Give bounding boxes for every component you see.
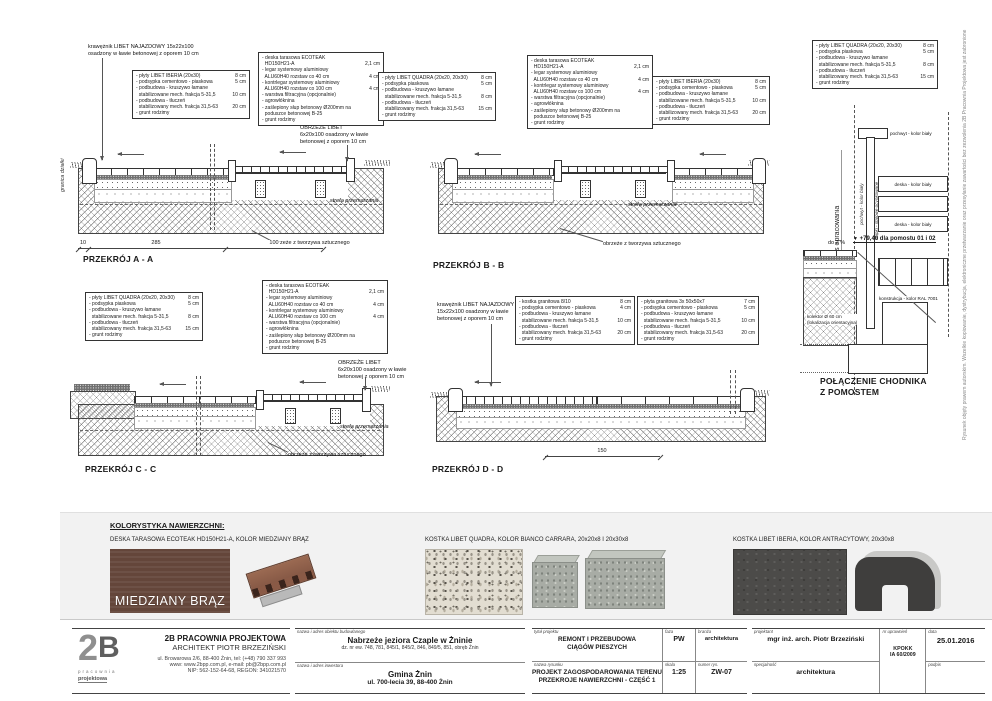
deck-joists-section [878,258,948,286]
label-obrzeze-tw-c: obrzeże z tworzywa sztucznego [288,452,366,459]
grass-symbol [370,386,390,392]
specjalnosc-row: specjalność architektura [752,662,879,693]
spec-box-quadra-b: - płyty LIBET QUADRA (20x20, 20x30)8 cm-… [378,72,496,121]
spec-lines: - deska tarasowa ECOTEAK HD150H21-A2,1 c… [266,283,384,351]
spec-lines: - płyta granitowa 3x 50x50x77 cm- podsyp… [641,299,755,342]
ground-hatch [803,277,857,346]
spec-box-iberia-a: - płyty LIBET IBERIA (20x30)8 cm- podsyp… [132,70,250,119]
titleblock-project-cell: tytuł projektu REMONT I PRZEBUDOWA CIĄGÓ… [532,628,747,694]
elevation-value: +79,40 dla pomostu 01 i 02 [860,236,936,242]
numer-value: ZW-07 [696,669,747,676]
label-pochwyt: pochwyt - kolor biały [890,131,932,137]
concrete-post [635,180,646,198]
concrete-post [580,180,591,198]
investor-row: nazwa i adres inwestora Gmina Żnin ul. 7… [295,663,525,693]
spec-lines: - płyty LIBET QUADRA (20x20, 20x30)8 cm-… [89,295,199,338]
spec-line: - grunt rodzimy [136,110,246,116]
elevation-marker-icon: ▼ [853,236,858,242]
edge-band [667,160,675,182]
deck-board: deska - kolor biały [878,176,948,192]
concrete-post [285,408,296,424]
spec-line: - grunt rodzimy [262,117,380,123]
data-label: data [926,629,985,636]
logo-sub2: projektowa [78,676,107,683]
spec-line: - grunt rodzimy [89,332,199,338]
skala-label: skala [663,662,695,669]
company-logo: 2 B pracownia projektowa [76,635,134,687]
slope-arrow-icon [700,154,726,155]
boundary-line [948,112,949,337]
projektant-label: projektant [752,629,879,636]
edge-band [256,390,264,410]
guide-line [800,372,848,373]
spec-line: - grunt rodzimy [816,80,934,86]
podpis-label: podpis [926,662,985,669]
company-name: 2B PRACOWNIA PROJEKTOWA [134,634,286,643]
joist-line [262,401,362,404]
label-kraweznik-a: krawężnik LIBET NAJAZDOWY 15x22x100 osad… [88,44,248,58]
block-front-face [855,557,935,611]
expansion-joint [735,370,736,414]
joist-line [558,173,666,176]
spec-box-quadra-c: - płyty LIBET QUADRA (20x20, 20x30)8 cm-… [85,292,203,341]
spec-line: - grunt rodzimy [531,120,649,126]
skala-col: skala 1:25 [662,662,695,693]
dim-value: 285 [150,240,161,246]
branza-value: architektura [696,636,747,642]
numer-col: numer rys. ZW-07 [695,662,747,693]
slope-arrow-icon [160,384,186,385]
spec-line: - grunt rodzimy [382,112,492,118]
cross-section-c-drawing [70,384,390,460]
grass-symbol [364,160,390,166]
data-row: data 25.01.2016 [926,629,985,662]
dimension-line-d: 150 [545,456,660,457]
company-architect: ARCHITEKT PIOTR BRZEZIŃSKI [134,643,286,652]
spec-line: - grunt rodzimy [641,336,755,342]
deck-boards [262,394,364,401]
cross-section-d-drawing [430,386,770,444]
edge-band [228,160,236,182]
slope-arrow-icon [475,154,501,155]
dim-tick [86,246,92,252]
designer-col: projektant mgr inż. arch. Piotr Brzezińs… [752,629,879,693]
specjalnosc-label: specjalność [752,662,879,669]
dimension-line-a: 10 285 100 [78,248,323,249]
projektant-value: mgr inż. arch. Piotr Brzeziński [752,636,879,643]
joist-line [232,173,346,176]
numer-label: numer rys. [696,662,747,669]
spec-lines: - płyty LIBET QUADRA (20x20, 20x30)8 cm-… [816,43,934,86]
branza-label: branża [696,629,747,636]
spec-box-plyta-d: - płyta granitowa 3x 50x50x77 cm- podsyp… [637,296,759,345]
concrete-post [315,180,326,198]
subbase-layer [134,416,256,429]
investor-label: nazwa i adres inwestora [295,663,525,670]
logo-char-b: B [98,631,120,665]
label-obrzeze-tw-b: obrzeże z tworzywa sztucznego [603,241,681,248]
label-kolektor: kolektor Ø 60 cm (lokalizacja orientacyj… [806,314,858,325]
project-row: tytuł projektu REMONT I PRZEBUDOWA CIĄGÓ… [532,629,747,662]
color-item-label-ecoteak: DESKA TARASOWA ECOTEAK HD150H21-A, KOLOR… [110,537,309,543]
concrete-post [255,180,266,198]
quadra-block-small [532,555,578,607]
dim-tick [321,246,327,252]
spec-lines: - deska tarasowa ECOTEAK HD150H21-A2,1 c… [531,58,649,126]
block-front-face [585,558,665,609]
company-nip: NIP: 562-152-64-68, REGON: 341021570 [134,668,286,674]
subbase-layer [672,189,754,203]
spec-box-iberia-b: - płyty LIBET IBERIA (20x30)8 cm- podsyp… [652,76,770,125]
object-row: nazwa i adres obiektu budowlanego Nabrze… [295,629,525,663]
data-value: 25.01.2016 [926,636,985,645]
spec-box-ecoteak-c: - deska tarasowa ECOTEAK HD150H21-A2,1 c… [262,280,388,354]
leader-line [347,145,348,161]
object-sub: dz. nr ew. 748, 781, 845/1, 845/2, 846, … [295,645,525,651]
block-front-face [532,562,578,608]
faza-col: faza PW [662,629,695,661]
expansion-joint [196,376,197,456]
swatch-bianco-carrara [425,549,523,615]
dim-tick [223,246,229,252]
elevation-label: ▼ +79,40 dla pomostu 01 i 02 [853,236,936,243]
cross-section-b-drawing [430,150,770,240]
section-title-d: PRZEKRÓJ D - D [432,464,503,474]
deck-board [878,196,948,212]
slope-arrow-icon [475,382,501,383]
leader-line [365,378,366,390]
uprawnienia-label: nr uprawnień [880,629,925,636]
color-item-label-quadra: KOSTKA LIBET QUADRA, KOLOR BIANCO CARRAR… [425,537,628,543]
spec-box-quadra-pomost: - płyty LIBET QUADRA (20x20, 20x30)8 cm-… [812,40,938,89]
project-value: REMONT I PRZEBUDOWA CIĄGÓW PIESZYCH [532,636,662,652]
titleblock-designer-cell: projektant mgr inż. arch. Piotr Brzezińs… [752,628,985,694]
swatch-miedziany-braz: MIEDZIANY BRĄZ [110,549,230,613]
foundation-base [848,344,928,374]
company-info: 2B PRACOWNIA PROJEKTOWA ARCHITEKT PIOTR … [134,634,286,674]
dim-tick [76,246,82,252]
project-title-col: tytuł projektu REMONT I PRZEBUDOWA CIĄGÓ… [532,629,662,661]
designer-row: projektant mgr inż. arch. Piotr Brzezińs… [752,629,879,662]
iberia-block-image [855,549,947,613]
expansion-joint [210,144,211,230]
investor-sub: ul. 700-lecia 39, 88-400 Żnin [295,679,525,686]
deck-boards [558,166,668,173]
skala-value: 1:25 [663,669,695,676]
subbase-layer [456,417,746,429]
frost-line [440,204,762,205]
drawing-sheet: granica działki Rysunek objęty prawem au… [0,0,992,701]
guide-line [800,344,848,345]
data-podpis-col: data 25.01.2016 podpis [925,629,985,693]
faza-label: faza [663,629,695,636]
expansion-joint [214,144,215,230]
investor-name: Gmina Żnin [295,670,525,679]
dim-value: 150 [596,448,607,454]
faza-value: PW [663,636,695,643]
spec-box-kostka-d: - kostka granitowa 8/108 cm- podsypka ce… [515,296,635,345]
spec-lines: - płyty LIBET IBERIA (20x30)8 cm- podsyp… [656,79,766,122]
expansion-joint [730,370,731,414]
curb-najazdowy [740,388,755,412]
drawing-row: nazwa rysunku PROJEKT ZAGOSPODAROWANIA T… [532,662,747,693]
concrete-post [330,408,341,424]
label-obrzeze-libet-a: OBRZEŻE LIBET 6x20x100 osadzony w ławie … [300,125,392,146]
leader-line [491,324,492,386]
slope-arrow-icon [280,152,306,153]
dim-tick [658,454,664,460]
spec-lines: - płyty LIBET QUADRA (20x20, 20x30)8 cm-… [382,75,492,118]
object-name: Nabrzeże jeziora Czaple w Żninie [295,636,525,645]
label-strefa-b: strefa przemarzania [628,202,677,209]
edge-band [554,160,562,182]
spec-line: - grunt rodzimy [266,345,384,351]
dim-value: 100 [268,240,279,246]
swatch-antracyt [733,549,847,615]
label-pochwyt-vertical: pochwyt - kolor biały [859,150,864,225]
leader-line [102,58,103,160]
section-title-b: PRZEKRÓJ B - B [433,260,504,270]
dim-tick [543,454,549,460]
block-notch [882,585,908,611]
label-strefa-a: strefa przemarzania [330,198,379,205]
object-label: nazwa i adres obiektu budowlanego [295,629,525,636]
uprawnienia-col: nr uprawnień KPOKK IA 60/2009 [879,629,925,693]
frost-line [80,430,380,431]
cross-section-a-drawing [70,150,390,240]
section-title-c: PRZEKRÓJ C - C [85,464,156,474]
spec-box-ecoteak-b: - deska tarasowa ECOTEAK HD150H21-A2,1 c… [527,55,653,129]
specjalnosc-value: architektura [752,669,879,676]
project-label: tytuł projektu [532,629,662,636]
dim-value: 10 [79,240,87,246]
spec-box-ecoteak-a: - deska tarasowa ECOTEAK HD150H21-A2,1 c… [258,52,384,126]
label-deska: deska - kolor biały [894,222,931,227]
logo-sub1: pracownia [78,669,117,674]
drawing-value: PROJEKT ZAGOSPODAROWANIA TERENU PRZEKROJ… [532,669,662,685]
expansion-joint [200,376,201,456]
slope-arrow-icon [300,382,326,383]
curb-najazdowy [82,158,97,184]
branza-col: branża architektura [695,629,747,661]
label-obrzeze-libet-c: OBRZEŻE LIBET 6x20x100 osadzony w ławie … [338,360,428,381]
deck-boards [232,166,348,173]
curb-najazdowy [752,158,766,184]
property-line-label: granica działki [60,122,66,192]
curb-najazdowy [444,158,458,184]
spec-lines: - kostka granitowa 8/108 cm- podsypka ce… [519,299,631,342]
logo-char-2: 2 [78,627,98,669]
subbase-layer [452,189,554,203]
spec-line: - grunt rodzimy [656,116,766,122]
uprawnienia-value: KPOKK IA 60/2009 [880,646,925,658]
copyright-note: Rysunek objęty prawem autorskim. Wszelki… [962,40,968,440]
deck-board: deska - kolor biały [878,216,948,232]
subbase-layer [94,189,232,203]
label-strefa-c: strefa przemarzania [340,424,389,431]
slope-arrow-icon [118,154,144,155]
color-scheme-band: KOLORYSTYKA NAWIERZCHNI: DESKA TARASOWA … [60,512,992,620]
swatch-text: MIEDZIANY BRĄZ [110,594,230,608]
color-item-label-iberia: KOSTKA LIBET IBERIA, KOLOR ANTRACYTOWY, … [733,537,894,543]
spec-lines: - deska tarasowa ECOTEAK HD150H21-A2,1 c… [262,55,380,123]
label-obrzeze-tw-a: obrzeże z tworzywa sztucznego [272,240,350,247]
spec-line: - grunt rodzimy [519,336,631,342]
podpis-row: podpis [926,662,985,693]
titleblock-company-cell: 2 B pracownia projektowa 2B PRACOWNIA PR… [72,628,290,694]
spec-lines: - płyty LIBET IBERIA (20x30)8 cm- podsyp… [136,73,246,116]
quadra-block-large [585,550,665,608]
drawing-title-col: nazwa rysunku PROJEKT ZAGOSPODAROWANIA T… [532,662,662,693]
color-scheme-header: KOLORYSTYKA NAWIERZCHNI: [110,521,224,530]
drawing-label: nazwa rysunku [532,662,662,669]
label-slope: do 2 % [828,240,845,247]
section-title-a: PRZEKRÓJ A - A [83,254,153,264]
label-deska: deska - kolor biały [894,182,931,187]
curb-najazdowy [448,388,463,412]
titleblock-object-cell: nazwa i adres obiektu budowlanego Nabrze… [295,628,525,694]
pomost-title: POŁĄCZENIE CHODNIKA Z POMOSTEM [820,376,927,399]
deck-profile-image [246,551,316,611]
label-konstrukcja: konstrukcja - kolor RAL 7001 [878,296,939,302]
